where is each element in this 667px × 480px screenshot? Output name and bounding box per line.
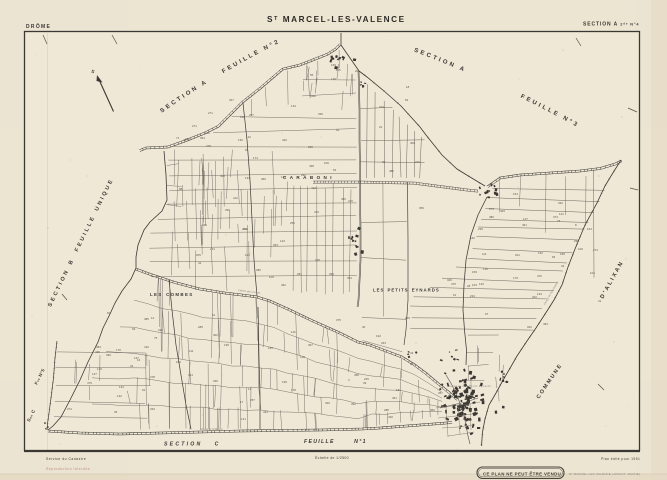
svg-text:134: 134 — [119, 385, 124, 389]
svg-text:354: 354 — [347, 276, 352, 280]
svg-text:322: 322 — [558, 201, 563, 205]
svg-text:333: 333 — [381, 341, 386, 345]
svg-text:109: 109 — [269, 275, 274, 279]
svg-text:463: 463 — [543, 322, 548, 326]
svg-text:126: 126 — [281, 175, 286, 179]
svg-text:336: 336 — [318, 112, 323, 116]
svg-text:486: 486 — [489, 215, 494, 219]
svg-text:Reproduction interdite: Reproduction interdite — [46, 467, 90, 471]
svg-text:412: 412 — [311, 186, 316, 190]
svg-text:104: 104 — [590, 271, 595, 275]
svg-text:292: 292 — [301, 173, 306, 177]
svg-text:88: 88 — [179, 187, 183, 191]
svg-text:288: 288 — [384, 408, 389, 412]
svg-text:126: 126 — [245, 253, 250, 257]
svg-text:35: 35 — [114, 410, 118, 414]
svg-text:165: 165 — [268, 346, 273, 350]
svg-text:226: 226 — [243, 227, 248, 231]
svg-text:462: 462 — [281, 283, 286, 287]
svg-text:363: 363 — [273, 243, 278, 247]
svg-text:342: 342 — [527, 325, 532, 329]
svg-text:396: 396 — [106, 353, 111, 357]
svg-text:320: 320 — [325, 401, 330, 405]
svg-text:CARABONI: CARABONI — [283, 175, 335, 180]
svg-text:55: 55 — [310, 73, 314, 77]
svg-text:121: 121 — [241, 417, 246, 421]
svg-text:375: 375 — [336, 318, 341, 322]
svg-text:226: 226 — [158, 328, 163, 332]
svg-text:298: 298 — [574, 239, 579, 243]
svg-text:324: 324 — [379, 105, 384, 109]
svg-text:274: 274 — [489, 207, 494, 211]
svg-text:Chemin de St Marcel: Chemin de St Marcel — [200, 428, 223, 431]
svg-text:346: 346 — [447, 278, 452, 282]
svg-text:225: 225 — [364, 377, 369, 381]
svg-text:123: 123 — [280, 239, 285, 243]
svg-text:485: 485 — [389, 169, 394, 173]
svg-text:333: 333 — [150, 407, 155, 411]
svg-text:192: 192 — [376, 334, 381, 338]
svg-text:205: 205 — [196, 253, 201, 257]
svg-text:179: 179 — [97, 367, 102, 371]
svg-text:34: 34 — [561, 264, 565, 268]
svg-text:174: 174 — [253, 156, 258, 160]
svg-text:DRÔME: DRÔME — [26, 22, 51, 30]
svg-text:289: 289 — [198, 325, 203, 329]
svg-text:91: 91 — [245, 148, 249, 152]
svg-text:369: 369 — [261, 177, 266, 181]
svg-text:128: 128 — [300, 355, 305, 359]
svg-text:103: 103 — [472, 283, 477, 287]
svg-text:71: 71 — [176, 136, 180, 140]
svg-text:61: 61 — [453, 293, 457, 297]
svg-text:111: 111 — [189, 349, 194, 353]
svg-text:100: 100 — [578, 247, 583, 251]
svg-text:184: 184 — [396, 388, 401, 392]
svg-text:119: 119 — [205, 131, 210, 135]
svg-text:62: 62 — [142, 388, 146, 392]
svg-text:152: 152 — [538, 251, 543, 255]
svg-text:226: 226 — [415, 160, 420, 164]
svg-text:261: 261 — [210, 247, 215, 251]
svg-text:31: 31 — [598, 299, 602, 303]
svg-text:127: 127 — [92, 372, 97, 376]
svg-text:392: 392 — [351, 402, 356, 406]
svg-text:354: 354 — [200, 136, 205, 140]
svg-text:320: 320 — [311, 94, 316, 98]
svg-text:256: 256 — [290, 221, 295, 225]
svg-text:267: 267 — [249, 113, 254, 117]
svg-text:443: 443 — [263, 410, 268, 414]
svg-text:111: 111 — [482, 252, 487, 256]
svg-text:FEUILLE N°1: FEUILLE N°1 — [304, 439, 367, 445]
svg-text:93: 93 — [132, 327, 136, 331]
svg-text:20: 20 — [355, 69, 359, 73]
svg-text:278: 278 — [150, 375, 155, 379]
svg-text:378: 378 — [206, 144, 211, 148]
svg-text:178: 178 — [291, 388, 296, 392]
svg-text:61: 61 — [212, 313, 216, 317]
svg-text:84: 84 — [552, 255, 556, 259]
svg-text:234: 234 — [470, 294, 475, 298]
svg-text:28: 28 — [467, 284, 471, 288]
svg-text:43: 43 — [410, 351, 414, 355]
svg-text:Échelle de 1/2500: Échelle de 1/2500 — [315, 455, 349, 460]
svg-text:195: 195 — [224, 343, 229, 347]
svg-text:339: 339 — [213, 379, 218, 383]
svg-text:246: 246 — [348, 199, 353, 203]
svg-text:179: 179 — [513, 276, 518, 280]
svg-text:321: 321 — [515, 253, 520, 257]
svg-text:219: 219 — [405, 316, 410, 320]
svg-text:357: 357 — [438, 391, 443, 395]
svg-text:52: 52 — [405, 98, 409, 102]
svg-text:435: 435 — [95, 350, 100, 354]
svg-text:296: 296 — [308, 145, 313, 149]
svg-text:202: 202 — [532, 295, 537, 299]
svg-text:448: 448 — [220, 174, 225, 178]
svg-text:42: 42 — [198, 261, 202, 265]
svg-text:218: 218 — [315, 258, 320, 262]
svg-text:127: 127 — [523, 217, 528, 221]
svg-text:133: 133 — [537, 292, 542, 296]
svg-text:451: 451 — [522, 223, 527, 227]
svg-text:Sᵖ MARCEL-LES-VALENCE (ARCHIT: Sᵖ MARCEL-LES-VALENCE (ARCHIT. MAIRIE) — [569, 472, 640, 476]
svg-text:141: 141 — [559, 212, 564, 216]
svg-text:380: 380 — [256, 268, 261, 272]
svg-text:17: 17 — [240, 400, 244, 404]
svg-text:466: 466 — [341, 197, 346, 201]
svg-text:142: 142 — [117, 394, 122, 398]
svg-text:485: 485 — [144, 317, 149, 321]
svg-text:Hameau des Petits Eynards: Hameau des Petits Eynards — [449, 384, 491, 388]
svg-text:168: 168 — [240, 115, 245, 119]
svg-text:164: 164 — [587, 227, 592, 231]
svg-text:ST MARCEL-LES-VALENCE: ST MARCEL-LES-VALENCE — [267, 15, 406, 24]
svg-text:136: 136 — [483, 267, 488, 271]
svg-text:169: 169 — [331, 63, 336, 67]
svg-text:159: 159 — [472, 270, 477, 274]
svg-text:430: 430 — [388, 415, 393, 419]
svg-text:458: 458 — [354, 373, 359, 377]
svg-text:99: 99 — [382, 160, 386, 164]
svg-text:154: 154 — [513, 192, 518, 196]
svg-text:412: 412 — [233, 196, 238, 200]
svg-text:229: 229 — [478, 227, 483, 231]
svg-text:54: 54 — [333, 168, 337, 172]
svg-text:81: 81 — [107, 311, 111, 315]
svg-text:40: 40 — [362, 325, 366, 329]
svg-text:475: 475 — [451, 282, 456, 286]
svg-text:402: 402 — [213, 333, 218, 337]
svg-text:451: 451 — [392, 396, 397, 400]
svg-text:395: 395 — [329, 272, 334, 276]
svg-text:LES PETITS EYNARDS: LES PETITS EYNARDS — [373, 288, 440, 293]
svg-text:160: 160 — [470, 236, 475, 240]
svg-text:476: 476 — [537, 274, 542, 278]
svg-text:140: 140 — [479, 282, 484, 286]
svg-text:12: 12 — [151, 316, 155, 320]
svg-text:197: 197 — [410, 362, 415, 366]
svg-text:97: 97 — [485, 312, 489, 316]
svg-text:18: 18 — [406, 85, 410, 89]
svg-text:281: 281 — [297, 272, 302, 276]
svg-text:316: 316 — [202, 223, 207, 227]
svg-text:257: 257 — [250, 398, 255, 402]
svg-text:SECTION C: SECTION C — [164, 442, 221, 448]
svg-text:130: 130 — [238, 138, 243, 142]
svg-text:170: 170 — [116, 348, 121, 352]
svg-text:271: 271 — [208, 111, 213, 115]
svg-text:186: 186 — [176, 360, 181, 364]
svg-text:115: 115 — [336, 68, 341, 72]
svg-text:271: 271 — [192, 124, 197, 128]
svg-text:116: 116 — [291, 330, 296, 334]
svg-text:44: 44 — [130, 364, 134, 368]
svg-text:416: 416 — [144, 345, 149, 349]
svg-text:493: 493 — [500, 209, 505, 213]
svg-text:479: 479 — [87, 381, 92, 385]
svg-text:106: 106 — [324, 161, 329, 165]
svg-text:290: 290 — [225, 208, 230, 212]
svg-text:22: 22 — [379, 125, 383, 129]
svg-text:139: 139 — [331, 77, 336, 81]
svg-text:314: 314 — [188, 373, 193, 377]
svg-text:359: 359 — [419, 206, 424, 210]
svg-text:Service du Cadastre: Service du Cadastre — [46, 457, 86, 461]
svg-text:14: 14 — [248, 387, 252, 391]
svg-text:75: 75 — [154, 336, 158, 340]
svg-text:Plan édité pour 1951: Plan édité pour 1951 — [601, 457, 640, 461]
svg-text:131: 131 — [245, 176, 250, 180]
svg-text:409: 409 — [410, 141, 415, 145]
svg-text:466: 466 — [430, 408, 435, 412]
svg-text:195: 195 — [282, 380, 287, 384]
svg-text:433: 433 — [314, 210, 319, 214]
svg-text:CE PLAN NE PEUT ÊTRE VENDU: CE PLAN NE PEUT ÊTRE VENDU — [483, 472, 561, 477]
svg-text:91: 91 — [336, 128, 340, 132]
svg-text:134: 134 — [291, 104, 296, 108]
svg-text:122: 122 — [246, 135, 251, 139]
svg-text:440: 440 — [282, 138, 287, 142]
svg-text:367: 367 — [308, 343, 313, 347]
svg-text:438: 438 — [309, 164, 314, 168]
svg-text:39: 39 — [363, 381, 367, 385]
svg-text:75: 75 — [557, 219, 561, 223]
svg-text:347: 347 — [229, 98, 234, 102]
svg-text:274: 274 — [593, 248, 598, 252]
svg-text:40: 40 — [183, 138, 187, 142]
svg-text:137: 137 — [134, 356, 139, 360]
svg-text:189: 189 — [560, 252, 565, 256]
svg-text:274: 274 — [67, 407, 72, 411]
svg-text:LES COMBES: LES COMBES — [150, 292, 194, 297]
